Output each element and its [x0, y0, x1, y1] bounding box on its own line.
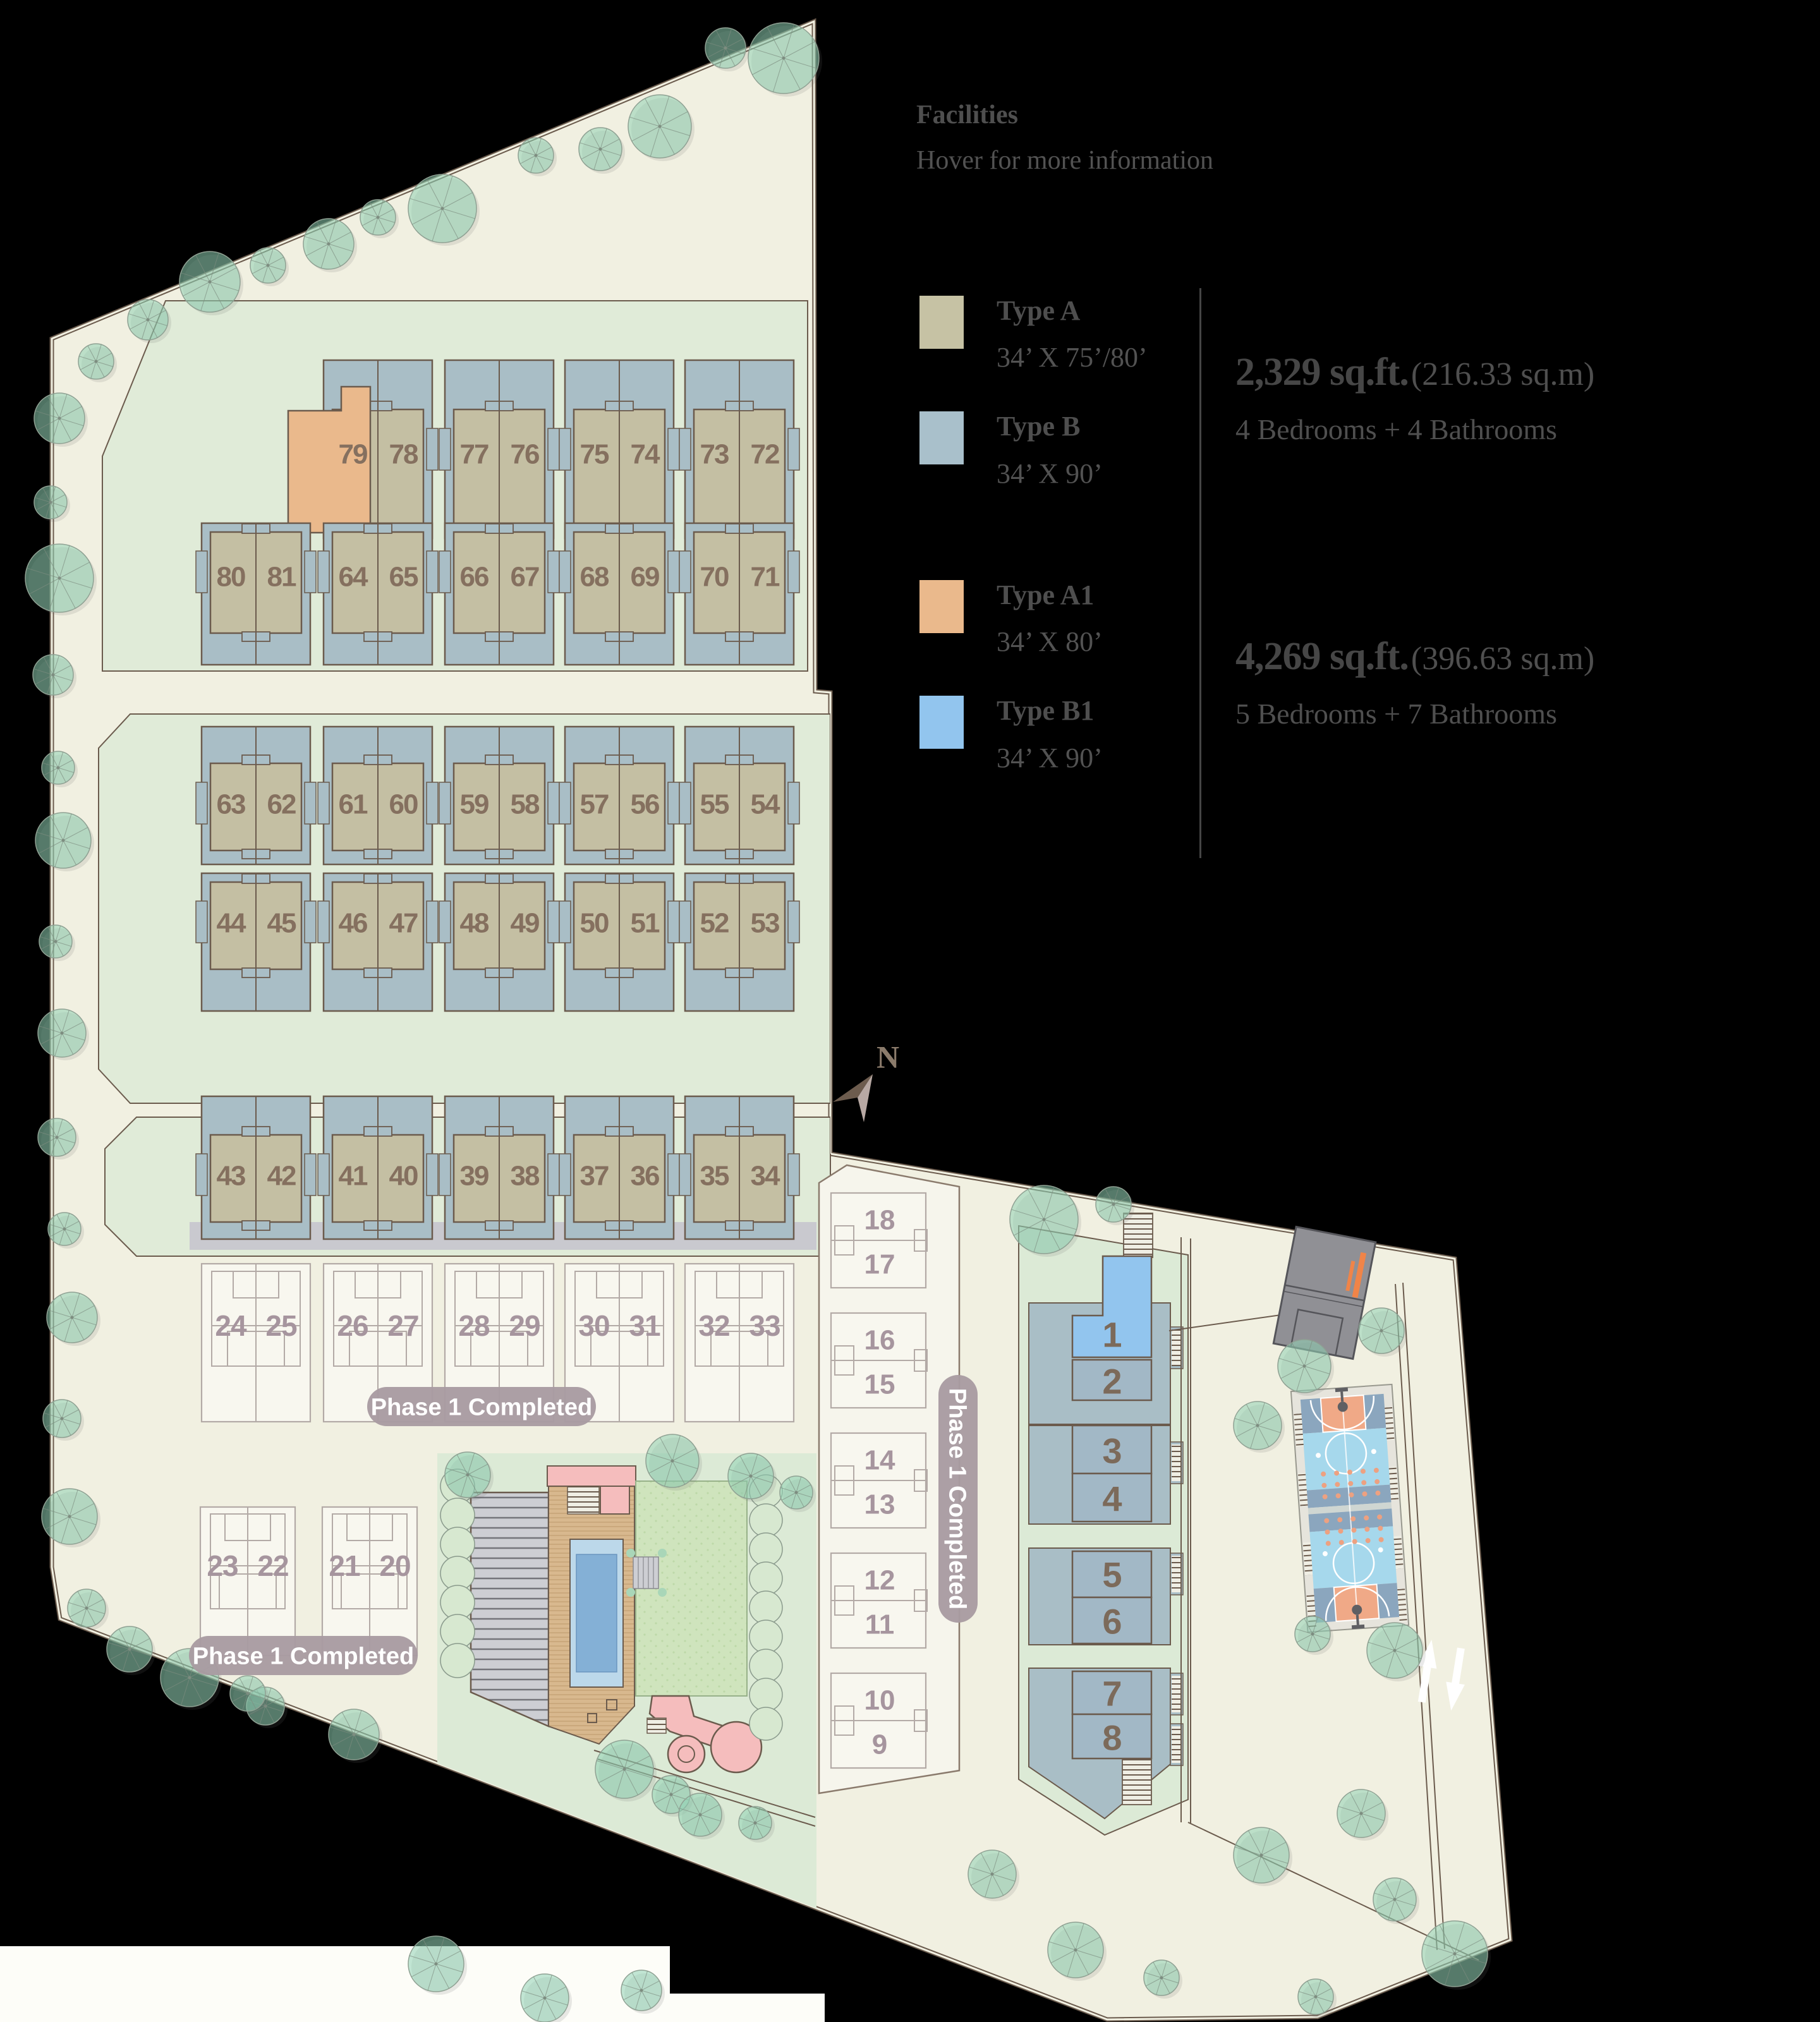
lot-block-43-42[interactable]: 4342 [196, 1096, 316, 1239]
lot-block-37-36[interactable]: 3736 [559, 1096, 679, 1239]
unit-number: 53 [751, 907, 779, 938]
rooms-info: 4 Bedrooms + 4 Bathrooms [1235, 413, 1594, 446]
phase1-lot-block-24-25[interactable]: 2425 [202, 1264, 310, 1422]
unit-number: 47 [389, 907, 418, 938]
unit-number: 25 [265, 1309, 297, 1342]
unit-number: 62 [267, 789, 296, 820]
unit-number: 12 [864, 1565, 895, 1595]
page: 7978777675747372808164656667686970716362… [0, 0, 1820, 2022]
phase-banner-label: Phase 1 Completed [193, 1643, 415, 1669]
type-b1-dims: 34’ X 90’ [997, 742, 1103, 774]
unit-number: 17 [864, 1249, 895, 1280]
unit-number: 22 [257, 1549, 288, 1582]
unit-number: 67 [511, 561, 539, 592]
cluster-unit-8[interactable]: 8 [1072, 1714, 1151, 1759]
unit-number: 31 [629, 1309, 660, 1342]
unit-number: 18 [864, 1204, 895, 1235]
unit-number: 58 [511, 789, 540, 820]
unit-number: 79 [339, 439, 367, 469]
unit-number: 59 [460, 789, 488, 820]
unit-number: 33 [749, 1309, 780, 1342]
unit-number: 26 [337, 1309, 368, 1342]
type-a-dims: 34’ X 75’/80’ [997, 341, 1148, 373]
unit-number: 35 [700, 1160, 729, 1191]
unit-number: 68 [580, 561, 609, 592]
type-b-dims: 34’ X 90’ [997, 457, 1103, 490]
lot-block-35-34[interactable]: 3534 [679, 1096, 799, 1239]
compass: N [833, 1039, 899, 1123]
type-a1-swatch [919, 580, 964, 633]
unit-number: 74 [631, 439, 660, 469]
unit-number: 50 [580, 907, 609, 938]
unit-number: 76 [511, 439, 539, 469]
lot-block-66-67[interactable]: 6667 [439, 523, 559, 665]
phase-banner: Phase 1 Completed [938, 1375, 978, 1623]
type-b1-label: Type B1 [997, 696, 1103, 726]
lot-block-68-69[interactable]: 6869 [559, 523, 679, 665]
phase-banner-label: Phase 1 Completed [944, 1388, 971, 1610]
cluster-units: 12345678 [1029, 1213, 1183, 1819]
lawn[interactable] [626, 1481, 747, 1696]
stairs [1122, 1758, 1151, 1805]
unit-number: 42 [267, 1160, 296, 1191]
lot-block-64-65[interactable]: 6465 [318, 523, 438, 665]
lot-block-70-71[interactable]: 7071 [679, 523, 799, 665]
type-b-label: Type B [997, 411, 1103, 442]
unit-number: 81 [267, 561, 296, 592]
lot-block-61-60[interactable]: 6160 [318, 727, 438, 864]
lot-block-80-81[interactable]: 8081 [196, 523, 316, 665]
type-a-label: Type A [997, 296, 1148, 326]
legend-entry-type-a[interactable]: Type A 34’ X 75’/80’ [914, 296, 1199, 373]
unit-number: 21 [329, 1549, 360, 1582]
unit-number: 70 [700, 561, 729, 592]
unit-number: 14 [864, 1444, 895, 1475]
unit-number: 36 [631, 1160, 659, 1191]
basketball-court[interactable] [1291, 1384, 1409, 1632]
cluster-unit-4[interactable]: 4 [1072, 1474, 1151, 1522]
unit-number: 8 [1102, 1718, 1122, 1758]
unit-number: 3 [1102, 1431, 1122, 1471]
phase1-lot-block-32-33[interactable]: 3233 [685, 1264, 794, 1422]
legend-title: Facilities [916, 100, 1018, 130]
unit-number: 65 [389, 561, 418, 592]
phase1-column-block-10-9[interactable]: 109 [831, 1673, 927, 1768]
unit-number: 32 [698, 1309, 729, 1342]
type-a1-label: Type A1 [997, 580, 1103, 610]
unit-number: 9 [872, 1729, 887, 1760]
lot-block-44-45[interactable]: 4445 [196, 873, 316, 1011]
lot-block-75-74[interactable]: 7574 [559, 360, 679, 542]
unit-number: 43 [217, 1160, 245, 1191]
unit-number: 51 [631, 907, 660, 938]
lot-block-77-76[interactable]: 7776 [439, 360, 559, 542]
area-sqft: 2,329 sq.ft. [1235, 351, 1409, 394]
type-b1-swatch [919, 696, 964, 749]
unit-number: 5 [1102, 1555, 1122, 1595]
unit-number: 55 [700, 789, 729, 820]
legend-entry-type-b[interactable]: Type B 34’ X 90’ [914, 411, 1199, 489]
phase1-column-block-12-11[interactable]: 1211 [831, 1553, 927, 1648]
area-sqft: 4,269 sq.ft. [1235, 635, 1409, 678]
unit-number: 45 [267, 907, 296, 938]
phase1-lot-block-21-20[interactable]: 2120 [322, 1507, 417, 1656]
unit-number: 48 [460, 907, 489, 938]
type-a-swatch [919, 296, 964, 349]
legend-panel: Facilities Hover for more information Ty… [914, 95, 1820, 916]
unit-number: 80 [217, 561, 245, 592]
type-a1-dims: 34’ X 80’ [997, 626, 1103, 658]
unit-number: 66 [460, 561, 488, 592]
lot-block-50-51[interactable]: 5051 [559, 873, 679, 1011]
lot-block-52-53[interactable]: 5253 [679, 873, 799, 1011]
phase-banner-label: Phase 1 Completed [371, 1394, 593, 1420]
unit-number: 15 [864, 1369, 895, 1400]
phase1-column-block-16-15[interactable]: 1615 [831, 1313, 927, 1408]
cluster-unit-3[interactable]: 3 [1072, 1426, 1151, 1474]
unit-number: 37 [580, 1160, 609, 1191]
unit-number: 69 [631, 561, 659, 592]
lot-block-39-38[interactable]: 3938 [439, 1096, 559, 1239]
legend-entry-type-b1[interactable]: Type B1 34’ X 90’ [914, 696, 1199, 773]
legend-group-a1b1: Type A1 34’ X 80’ Type B1 34’ X 90’ 4,26… [914, 580, 1820, 858]
unit-number: 61 [339, 789, 368, 820]
lot-block-46-47[interactable]: 4647 [318, 873, 438, 1011]
unit-number: 6 [1102, 1602, 1122, 1642]
unit-number: 24 [215, 1309, 247, 1342]
stepping-path [633, 1557, 658, 1589]
unit-number: 77 [460, 439, 488, 469]
parking-area[interactable] [471, 1492, 549, 1726]
unit-number: 29 [509, 1309, 540, 1342]
unit-number: 78 [389, 439, 418, 469]
phase-banner: Phase 1 Completed [367, 1387, 596, 1426]
unit-number: 38 [511, 1160, 540, 1191]
area-sqm: (396.63 sq.m) [1411, 641, 1594, 677]
phase1-lot-block-23-22[interactable]: 2322 [200, 1507, 295, 1656]
unit-number: 34 [751, 1160, 780, 1191]
unit-number: 63 [217, 789, 245, 820]
unit-number: 23 [207, 1549, 238, 1582]
unit-number: 1 [1102, 1315, 1122, 1355]
phase1-column-block-18-17[interactable]: 1817 [831, 1193, 927, 1288]
unit-number: 52 [700, 907, 729, 938]
phase1-column-block-14-13[interactable]: 1413 [831, 1433, 927, 1528]
compass-n-label: N [877, 1039, 899, 1075]
cluster-unit-2[interactable]: 2 [1072, 1360, 1151, 1401]
unit-number: 16 [864, 1324, 895, 1355]
lot-block-57-56[interactable]: 5756 [559, 727, 679, 864]
lot-block-55-54[interactable]: 5554 [679, 727, 799, 864]
unit-number: 40 [389, 1160, 418, 1191]
cluster-unit-5[interactable]: 5 [1072, 1551, 1151, 1597]
unit-number: 71 [751, 561, 780, 592]
cluster-unit-6[interactable]: 6 [1072, 1597, 1151, 1644]
legend-subtitle: Hover for more information [916, 145, 1213, 176]
legend-entry-type-a1[interactable]: Type A1 34’ X 80’ [914, 580, 1199, 658]
unit-number: 27 [387, 1309, 418, 1342]
unit-number: 2 [1102, 1362, 1122, 1401]
lot-block-59-58[interactable]: 5958 [439, 727, 559, 864]
unit-number: 72 [751, 439, 779, 469]
legend-group-ab: Type A 34’ X 75’/80’ Type B 34’ X 90’ 2,… [914, 296, 1820, 574]
unit-number: 13 [864, 1489, 895, 1520]
unit-number: 7 [1102, 1674, 1122, 1714]
unit-number: 4 [1102, 1479, 1122, 1519]
unit-number: 73 [700, 439, 729, 469]
unit-number: 11 [865, 1609, 895, 1640]
lot-block-41-40[interactable]: 4140 [318, 1096, 438, 1239]
unit-number: 39 [460, 1160, 488, 1191]
type-b-swatch [919, 411, 964, 464]
unit-number: 41 [339, 1160, 368, 1191]
unit-number: 54 [751, 789, 780, 820]
unit-number: 28 [458, 1309, 490, 1342]
lot-block-73-72[interactable]: 7372 [679, 360, 799, 542]
unit-number: 20 [379, 1549, 410, 1582]
lot-block-48-49[interactable]: 4849 [439, 873, 559, 1011]
unit-number: 64 [339, 561, 368, 592]
unit-number: 60 [389, 789, 418, 820]
cluster-unit-7[interactable]: 7 [1072, 1671, 1151, 1714]
unit-number: 30 [578, 1309, 609, 1342]
unit-number: 75 [580, 439, 609, 469]
unit-number: 44 [217, 907, 246, 938]
rooms-info: 5 Bedrooms + 7 Bathrooms [1235, 697, 1594, 730]
unit-number: 49 [511, 907, 539, 938]
unit-number: 56 [631, 789, 659, 820]
unit-number: 10 [864, 1685, 895, 1716]
unit-number: 46 [339, 907, 367, 938]
lot-block-63-62[interactable]: 6362 [196, 727, 316, 864]
area-sqm: (216.33 sq.m) [1411, 356, 1594, 392]
unit-number: 57 [580, 789, 609, 820]
phase-banner: Phase 1 Completed [189, 1636, 418, 1675]
